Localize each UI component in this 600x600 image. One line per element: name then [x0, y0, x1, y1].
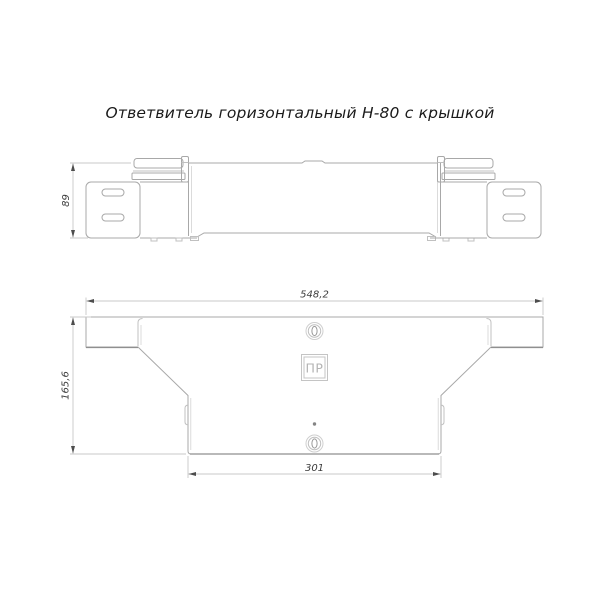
drawing-page: Ответвитель горизонтальный Н-80 с крышко… — [0, 0, 600, 600]
clamp-right-bar — [444, 159, 493, 169]
bracket-left-slot-2 — [102, 214, 124, 221]
dim-548-label: 548,2 — [300, 290, 329, 301]
dimension-side-height: 89 — [61, 163, 131, 238]
bracket-left-plate — [86, 182, 140, 238]
side-bottom-tabs — [151, 237, 474, 242]
side-section-right — [430, 182, 487, 238]
screw-bottom-slot — [312, 439, 317, 448]
top-view: ПР 548,2 — [61, 290, 544, 479]
dim-301-arrow-left — [189, 472, 197, 476]
screw-head-bottom — [306, 435, 323, 452]
logo-letters: ПР — [306, 361, 324, 376]
body-top-edge — [189, 161, 437, 163]
side-view: 89 — [61, 157, 541, 242]
bracket-right-slot-2 — [503, 214, 525, 221]
side-body — [189, 161, 441, 237]
fold-line-right — [487, 319, 492, 347]
dim-548-arrow-left — [87, 299, 95, 303]
brand-logo: ПР — [302, 355, 328, 381]
clamp-right-band — [442, 173, 495, 180]
side-bracket-left — [86, 182, 140, 238]
side-clamp-right — [438, 157, 496, 183]
tab-left-1 — [151, 238, 157, 241]
rivet-dot — [313, 422, 316, 425]
dim-165-label: 165,6 — [61, 371, 72, 400]
tab-left-2 — [176, 238, 182, 241]
side-bracket-right — [487, 182, 541, 238]
dimension-overall-depth: 165,6 — [61, 317, 187, 454]
fold-line-left — [138, 319, 143, 347]
screw-top-slot — [312, 326, 317, 335]
dimension-overall-width: 548,2 — [86, 290, 543, 316]
side-clamp-left — [132, 157, 189, 183]
technical-drawing: 89 — [0, 0, 600, 600]
dim-165-arrow-bottom — [71, 446, 75, 454]
clamp-left-band — [132, 173, 185, 180]
clamp-left-bar — [134, 159, 183, 169]
screw-head-top — [306, 323, 323, 340]
dim-89-arrow-top — [71, 164, 75, 172]
dim-301-arrow-right — [433, 472, 441, 476]
bracket-left-slot-1 — [102, 189, 124, 196]
bracket-right-plate — [487, 182, 541, 238]
bracket-right-slot-1 — [503, 189, 525, 196]
body-bottom-edge — [197, 233, 436, 237]
dim-89-arrow-bottom — [71, 230, 75, 238]
dim-548-arrow-right — [535, 299, 543, 303]
dim-89-label: 89 — [61, 194, 72, 207]
dim-165-arrow-top — [71, 318, 75, 326]
dimension-branch-width: 301 — [188, 456, 441, 478]
dim-301-label: 301 — [305, 463, 324, 474]
